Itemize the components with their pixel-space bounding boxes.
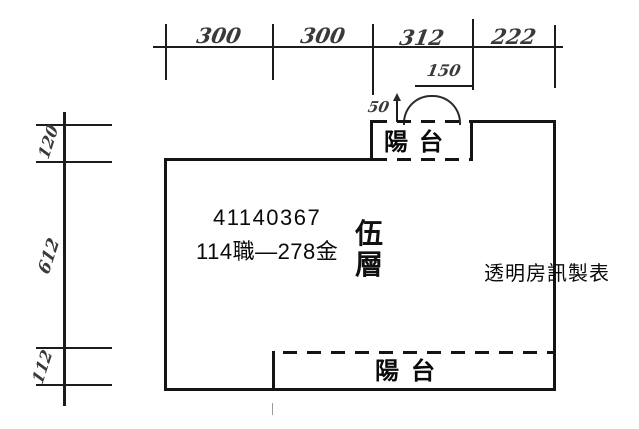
dimension-label-112: 112 [30, 348, 55, 387]
wall-top-left [164, 158, 373, 161]
area-info: 114職—278金 [196, 239, 338, 264]
left-dimension-tick-2 [36, 161, 112, 163]
top-dimension-tick-1 [165, 24, 167, 80]
bottom-balcony-label: 陽台 [375, 358, 447, 386]
dimension-50-arrow-line [396, 98, 398, 122]
source-label: 透明房訊製表 [484, 263, 610, 286]
bottom-balcony-wall-left [272, 351, 275, 391]
wall-bottom [164, 388, 556, 391]
dimension-label-120: 120 [36, 123, 61, 162]
left-dimension-line [63, 112, 66, 406]
dimension-label-50: 50 [367, 100, 391, 115]
dimension-label-312: 312 [398, 27, 446, 48]
floor-label-char-1: 伍 [351, 219, 387, 250]
wall-left [164, 158, 167, 391]
floor-label: 伍 層 [351, 219, 387, 281]
top-balcony-wall-right [470, 120, 473, 161]
top-dimension-tick-4 [472, 19, 474, 90]
top-balcony-wall-left [370, 120, 373, 161]
wall-top-right [470, 120, 556, 123]
bottom-balcony-edge-dashed [283, 351, 553, 354]
top-dimension-tick-5 [554, 25, 556, 88]
dimension-150-underline [415, 85, 472, 87]
small-reference-tick [272, 403, 273, 415]
wall-right [553, 120, 556, 391]
dimension-50-arrowhead [393, 93, 401, 101]
left-dimension-tick-4 [36, 384, 112, 386]
dimension-label-612: 612 [37, 236, 63, 277]
top-dimension-tick-3 [372, 24, 374, 95]
registration-number: 41140367 [213, 205, 321, 230]
left-dimension-tick-3 [36, 347, 112, 349]
dimension-label-300-left: 300 [195, 25, 243, 46]
top-balcony-inner-dashed [373, 158, 470, 161]
top-balcony-label: 陽台 [384, 129, 454, 157]
floor-plan-canvas: 300 300 312 222 150 50 120 612 112 陽台 陽台… [0, 0, 639, 429]
top-balcony-edge-dashed [373, 120, 470, 123]
top-dimension-tick-2 [272, 24, 274, 80]
floor-label-char-2: 層 [351, 250, 387, 281]
dimension-label-300-right: 300 [299, 25, 347, 46]
dimension-label-222: 222 [490, 26, 538, 47]
dimension-label-150: 150 [426, 63, 462, 79]
